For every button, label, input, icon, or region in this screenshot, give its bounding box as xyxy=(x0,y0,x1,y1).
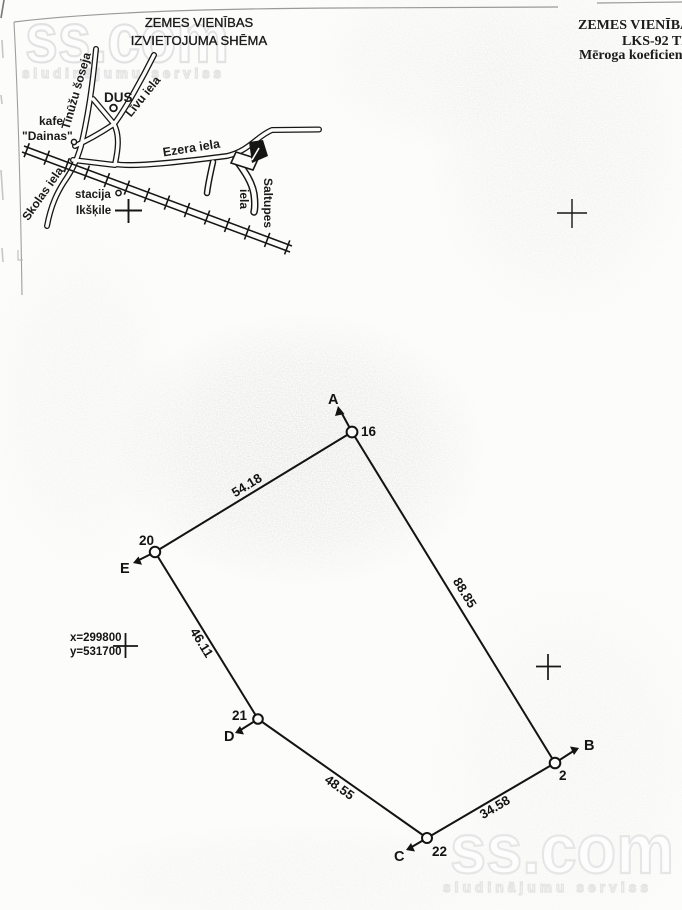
svg-text:2: 2 xyxy=(559,768,567,783)
svg-text:C: C xyxy=(394,849,405,865)
svg-text:y=531700: y=531700 xyxy=(70,646,122,658)
svg-text:ZEMES VIENĪBAS RO: ZEMES VIENĪBAS RO xyxy=(578,17,682,33)
svg-text:B: B xyxy=(584,738,594,754)
svg-text:ZEMES VIENĪBAS: ZEMES VIENĪBAS xyxy=(145,15,254,30)
svg-text:LKS-92 TM ko: LKS-92 TM ko xyxy=(622,34,682,49)
svg-text:20: 20 xyxy=(139,533,154,548)
svg-text:DUS: DUS xyxy=(104,90,133,105)
svg-text:16: 16 xyxy=(361,424,377,439)
svg-text:Mēroga koeficients: Mēroga koeficients xyxy=(579,48,682,63)
svg-text:stacija: stacija xyxy=(75,189,111,201)
svg-text:Saltupes: Saltupes xyxy=(261,178,275,228)
svg-text:IZVIETOJUMA SHĒMA: IZVIETOJUMA SHĒMA xyxy=(131,33,268,48)
svg-text:Ikšķile: Ikšķile xyxy=(76,205,111,217)
svg-text:E: E xyxy=(120,561,130,577)
svg-text:22: 22 xyxy=(432,844,447,859)
svg-text:x=299800: x=299800 xyxy=(70,632,122,644)
svg-text:iela: iela xyxy=(237,189,251,209)
svg-text:kafe: kafe xyxy=(39,114,63,128)
svg-text:A: A xyxy=(328,392,339,408)
svg-text:21: 21 xyxy=(232,708,248,723)
svg-text:"Dainas": "Dainas" xyxy=(22,129,73,143)
svg-text:D: D xyxy=(224,729,234,745)
